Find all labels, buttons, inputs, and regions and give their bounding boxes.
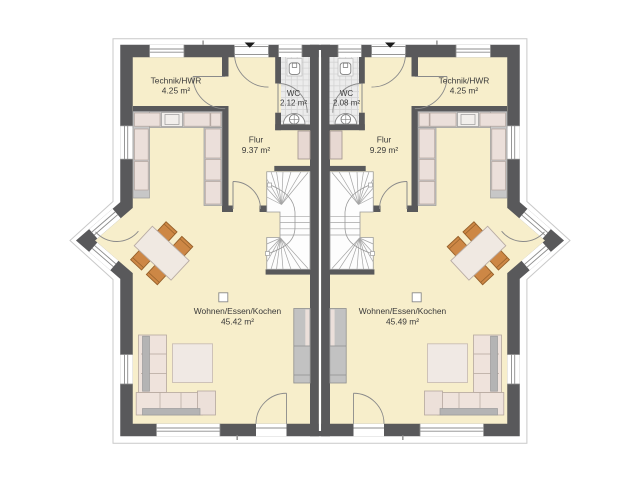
svg-text:4.25 m²: 4.25 m²	[450, 86, 479, 96]
svg-text:Wohnen/Essen/Kochen: Wohnen/Essen/Kochen	[194, 306, 282, 316]
svg-text:45.49 m²: 45.49 m²	[386, 317, 419, 327]
svg-text:WC: WC	[340, 89, 354, 98]
svg-text:Technik/HWR: Technik/HWR	[151, 76, 202, 86]
svg-text:4.25 m²: 4.25 m²	[162, 86, 191, 96]
svg-text:45.42 m²: 45.42 m²	[221, 317, 254, 327]
svg-text:WC: WC	[287, 89, 301, 98]
svg-text:Flur: Flur	[249, 135, 264, 145]
svg-text:Technik/HWR: Technik/HWR	[439, 76, 490, 86]
svg-text:Wohnen/Essen/Kochen: Wohnen/Essen/Kochen	[359, 306, 447, 316]
svg-text:2.08 m²: 2.08 m²	[333, 99, 360, 108]
svg-text:9.29 m²: 9.29 m²	[370, 145, 399, 155]
svg-text:Flur: Flur	[377, 135, 392, 145]
svg-text:9.37 m²: 9.37 m²	[242, 145, 271, 155]
svg-text:2.12 m²: 2.12 m²	[280, 99, 307, 108]
